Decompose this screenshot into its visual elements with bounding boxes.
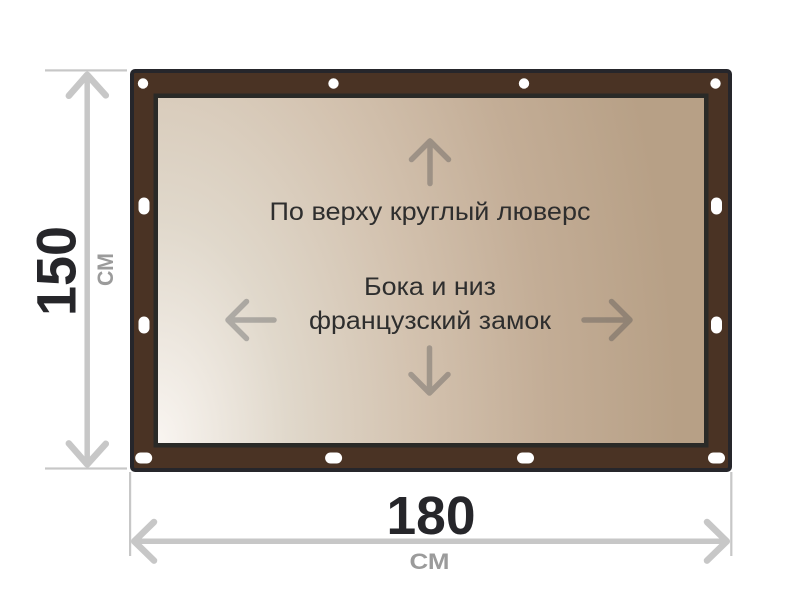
svg-text:180: 180 <box>387 486 476 546</box>
svg-text:французский замок: французский замок <box>309 307 552 335</box>
svg-text:Бока и низ: Бока и низ <box>364 273 496 301</box>
svg-text:СМ: СМ <box>93 253 118 286</box>
svg-text:СМ: СМ <box>410 549 450 574</box>
svg-text:150: 150 <box>25 226 88 316</box>
svg-text:По верху круглый люверс: По верху круглый люверс <box>270 198 591 226</box>
